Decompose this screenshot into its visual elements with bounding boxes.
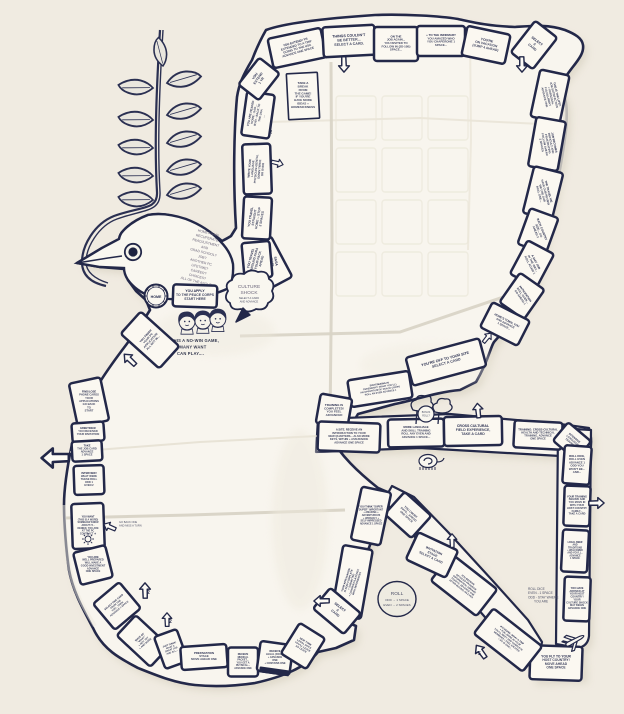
svg-text:CULTURE: CULTURE	[238, 284, 260, 290]
svg-text:HOME: HOME	[151, 295, 162, 299]
svg-text:SHOCK: SHOCK	[240, 290, 258, 296]
svg-text:ODD → 1 SPACE: ODD → 1 SPACE	[385, 598, 409, 602]
svg-text:5: 5	[478, 651, 481, 657]
svg-text:GREETINGS!YOU RECEIVEDYOUR INV: GREETINGS!YOU RECEIVEDYOUR INVITATION	[77, 426, 100, 436]
svg-text:AND ADVANCE: AND ADVANCE	[240, 300, 259, 304]
svg-text:MORE LANGUAGEAND SKILL TRAININ: MORE LANGUAGEAND SKILL TRAININGROLL ANY …	[401, 425, 430, 439]
svg-text:2: 2	[147, 590, 150, 596]
svg-text:TRAINING ISCOMPLETED!YOU FEELA: TRAINING ISCOMPLETED!YOU FEELADVANCED	[324, 403, 344, 417]
svg-text:ROLL?: ROLL?	[422, 414, 430, 417]
svg-text:EVEN → 2 SPACES: EVEN → 2 SPACES	[383, 603, 410, 607]
svg-text:SELECT A CARD: SELECT A CARD	[239, 296, 259, 300]
svg-text:YOU THINK "SUPERDUPER" IMPORTA: YOU THINK "SUPERDUPER" IMPORTANT+ AMAZIN…	[359, 506, 384, 526]
svg-text:2: 2	[169, 619, 172, 625]
svg-text:ROLL: ROLL	[391, 591, 404, 597]
